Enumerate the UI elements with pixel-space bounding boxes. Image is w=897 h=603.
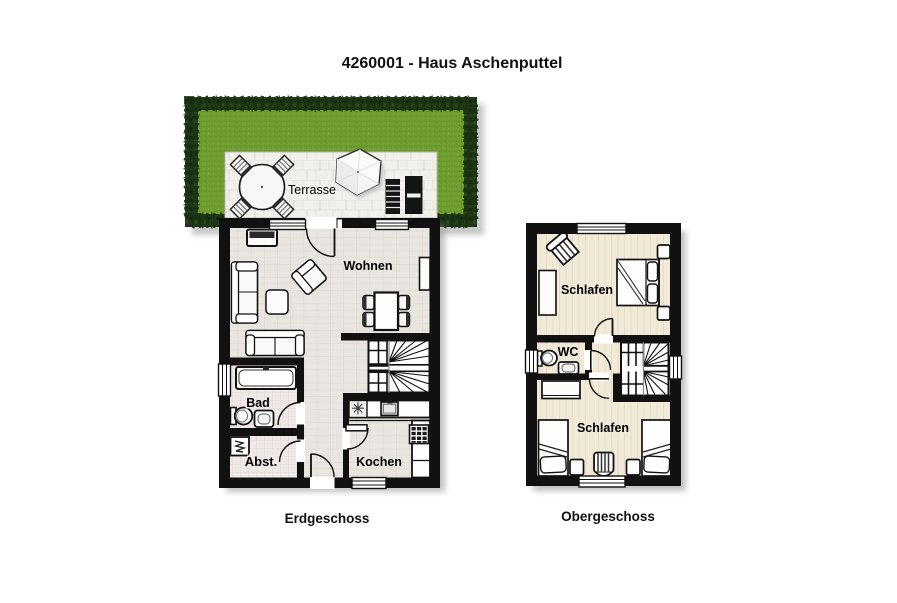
svg-text:Wohnen: Wohnen bbox=[343, 259, 392, 273]
svg-text:Schlafen: Schlafen bbox=[561, 283, 613, 297]
svg-text:Obergeschoss: Obergeschoss bbox=[561, 509, 655, 524]
svg-text:Kochen: Kochen bbox=[356, 455, 402, 469]
svg-text:Terrasse: Terrasse bbox=[288, 183, 336, 197]
svg-text:WC: WC bbox=[558, 345, 579, 359]
svg-text:Erdgeschoss: Erdgeschoss bbox=[285, 511, 370, 526]
svg-text:Abst.: Abst. bbox=[245, 454, 278, 469]
svg-text:Schlafen: Schlafen bbox=[577, 421, 629, 435]
svg-text:Bad: Bad bbox=[246, 396, 270, 410]
svg-text:4260001 - Haus Aschenputtel: 4260001 - Haus Aschenputtel bbox=[342, 55, 563, 72]
